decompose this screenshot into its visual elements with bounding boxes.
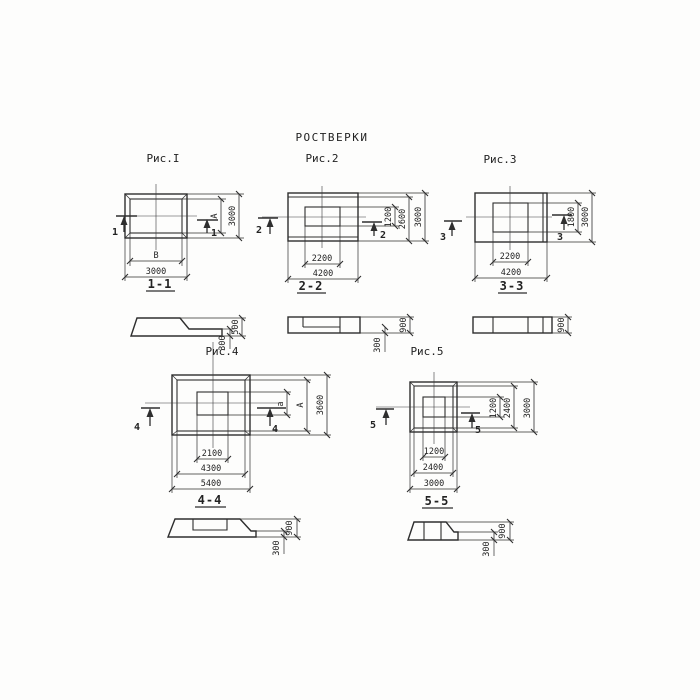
fig3-section-label: 3-3 bbox=[500, 279, 525, 293]
fig1-section-profile bbox=[131, 318, 222, 336]
fig3-plan: 3 3 1800 3000 2200 bbox=[440, 186, 596, 282]
fig2-section-mark-left: 2 bbox=[256, 218, 278, 236]
fig5-caption: Рис.5 bbox=[410, 345, 443, 358]
fig1-plan: 1 1 В 3000 А bbox=[112, 184, 244, 281]
fig5-section-label: 5-5 bbox=[425, 494, 450, 508]
fig4-corner-chamfers bbox=[172, 375, 250, 435]
fig2-centerlines bbox=[262, 186, 366, 248]
fig1-section-h: 500 bbox=[231, 319, 241, 334]
fig1-section: 1-1 500 300 bbox=[131, 277, 246, 351]
fig3-centerlines bbox=[466, 186, 552, 250]
fig2-dim-h: 3000 bbox=[414, 207, 424, 227]
figure-3: Рис.3 3 3 bbox=[440, 153, 596, 333]
fig5-section-toe: 300 bbox=[482, 541, 492, 556]
fig4-dim-h: 3600 bbox=[316, 395, 326, 415]
fig2-section-label: 2-2 bbox=[299, 279, 324, 293]
fig5-dim-w: 3000 bbox=[424, 479, 444, 489]
fig1-dim-w: 3000 bbox=[146, 267, 166, 277]
figure-2: Рис.2 2 2 bbox=[256, 152, 429, 353]
fig3-plan-inner bbox=[493, 203, 528, 232]
fig2-dim-mid-h: 2600 bbox=[398, 209, 408, 229]
fig5-mark-right-label: 5 bbox=[475, 425, 481, 436]
fig2-section-h: 900 bbox=[399, 317, 409, 332]
fig5-section-joints bbox=[424, 522, 441, 540]
fig1-dim-b: В bbox=[153, 251, 158, 261]
fig4-dim-a-big: А bbox=[296, 402, 306, 407]
fig2-caption: Рис.2 bbox=[305, 152, 338, 165]
fig2-mark-right-label: 2 bbox=[380, 230, 386, 241]
fig5-section-mark-left: 5 bbox=[370, 409, 394, 431]
fig3-section-dims: 900 bbox=[552, 317, 572, 333]
fig4-section-label: 4-4 bbox=[198, 493, 223, 507]
fig4-dims-right: а А 3600 bbox=[228, 375, 331, 435]
fig3-dims-bottom: 2200 4200 bbox=[475, 232, 547, 282]
figure-4: Рис.4 4 4 bbox=[134, 342, 331, 556]
fig4-plan-recess bbox=[197, 392, 228, 415]
fig1-mark-left-label: 1 bbox=[112, 227, 118, 238]
fig4-plan: 4 4 а А 3600 2100 bbox=[134, 342, 331, 493]
fig2-section: 2-2 900 300 bbox=[288, 279, 414, 353]
fig5-section-h: 900 bbox=[498, 523, 508, 538]
fig3-plan-outer bbox=[475, 193, 547, 242]
fig4-section: 4-4 900 300 bbox=[168, 493, 301, 556]
fig2-plan: 2 2 1200 2600 3000 bbox=[256, 186, 429, 283]
fig3-dim-w: 4200 bbox=[501, 268, 521, 278]
figure-5: Рис.5 5 5 bbox=[370, 345, 538, 557]
fig4-mark-right-label: 4 bbox=[272, 424, 278, 435]
fig5-dim-mid-h: 2400 bbox=[503, 398, 513, 418]
fig5-dim-h: 3000 bbox=[523, 398, 533, 418]
fig4-dim-inner-w: 2100 bbox=[202, 449, 222, 459]
fig4-mark-left-label: 4 bbox=[134, 422, 140, 433]
fig2-section-toe: 300 bbox=[373, 337, 383, 352]
fig4-plan-outer bbox=[172, 375, 250, 435]
fig3-mark-right-label: 3 bbox=[557, 232, 563, 243]
fig2-section-recess bbox=[303, 317, 340, 333]
figure-1: Рис.I 1 1 bbox=[112, 152, 246, 351]
fig5-dim-inner-h: 1200 bbox=[489, 398, 499, 418]
pile-cap-drawing: РОСТВЕРКИ Рис.I 1 bbox=[0, 0, 700, 700]
fig1-section-label: 1-1 bbox=[148, 277, 173, 291]
fig2-plan-inner bbox=[305, 207, 340, 226]
fig2-section-dims: 900 300 bbox=[360, 317, 414, 353]
fig4-caption: Рис.4 bbox=[205, 345, 238, 358]
fig1-section-mark-right: 1 bbox=[197, 219, 218, 239]
sheet-title: РОСТВЕРКИ bbox=[295, 131, 368, 144]
fig5-dim-inner-w: 1200 bbox=[424, 447, 444, 457]
fig4-section-notch bbox=[193, 519, 227, 530]
fig3-mark-left-label: 3 bbox=[440, 232, 446, 243]
drawing-sheet: РОСТВЕРКИ Рис.I 1 bbox=[0, 0, 700, 700]
fig4-dim-w: 5400 bbox=[201, 479, 221, 489]
fig3-dim-inner-w: 2200 bbox=[500, 252, 520, 262]
fig5-section: 5-5 900 300 bbox=[408, 494, 514, 557]
fig4-section-mark-left: 4 bbox=[134, 408, 160, 433]
fig3-section-h: 900 bbox=[557, 317, 567, 332]
fig1-caption: Рис.I bbox=[146, 152, 179, 165]
fig2-section-mark-right: 2 bbox=[362, 222, 386, 241]
fig4-dim-mid-w: 4300 bbox=[201, 464, 221, 474]
fig1-dim-a: А bbox=[210, 213, 220, 218]
fig3-dim-h: 3000 bbox=[581, 207, 591, 227]
fig2-dim-inner-h: 1200 bbox=[384, 207, 394, 227]
fig4-dim-a-small: а bbox=[276, 401, 286, 406]
fig2-mark-left-label: 2 bbox=[256, 225, 262, 236]
fig3-section-profile bbox=[473, 317, 552, 333]
fig2-dims-bottom: 2200 4200 bbox=[288, 226, 358, 283]
fig4-dims-bottom: 2100 4300 5400 bbox=[172, 415, 250, 493]
fig3-dim-inner-h: 1800 bbox=[567, 207, 577, 227]
fig3-section-mark-left: 3 bbox=[440, 221, 462, 243]
fig4-section-h: 900 bbox=[285, 520, 295, 535]
fig3-section: 3-3 900 bbox=[473, 279, 572, 333]
fig5-section-profile bbox=[408, 522, 458, 540]
fig5-plan: 5 5 1200 2400 3000 bbox=[370, 372, 538, 493]
fig4-plan-frame bbox=[177, 380, 245, 431]
fig4-section-profile bbox=[168, 519, 256, 537]
fig4-section-toe: 300 bbox=[272, 540, 282, 555]
fig1-dim-h: 3000 bbox=[228, 206, 238, 226]
fig5-mark-left-label: 5 bbox=[370, 420, 376, 431]
fig3-section-joints bbox=[493, 317, 543, 333]
fig2-section-profile bbox=[288, 317, 360, 333]
fig3-caption: Рис.3 bbox=[483, 153, 516, 166]
fig2-dim-w: 4200 bbox=[313, 269, 333, 279]
fig1-mark-right-label: 1 bbox=[211, 228, 217, 239]
fig2-dim-inner-w: 2200 bbox=[312, 254, 332, 264]
fig5-dim-mid-w: 2400 bbox=[423, 463, 443, 473]
fig5-section-mark-right: 5 bbox=[461, 413, 481, 436]
